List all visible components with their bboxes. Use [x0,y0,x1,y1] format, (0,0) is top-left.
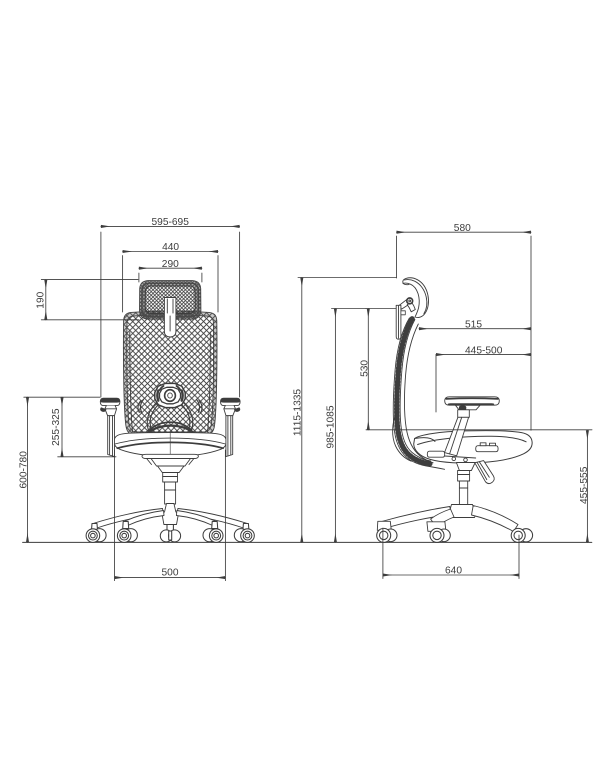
svg-text:455-555: 455-555 [579,466,590,504]
svg-text:500: 500 [162,568,179,579]
svg-text:985-1085: 985-1085 [325,405,336,448]
svg-text:1115-1335: 1115-1335 [292,389,303,437]
svg-text:445-500: 445-500 [465,346,503,357]
svg-text:600-780: 600-780 [18,451,29,489]
svg-text:190: 190 [36,291,47,308]
svg-text:255-325: 255-325 [51,408,62,446]
svg-text:580: 580 [454,223,471,234]
svg-text:515: 515 [465,320,482,331]
svg-text:290: 290 [162,259,179,270]
svg-text:440: 440 [162,242,179,253]
svg-text:640: 640 [445,565,462,576]
svg-text:595-695: 595-695 [152,217,190,228]
svg-text:530: 530 [360,360,371,377]
